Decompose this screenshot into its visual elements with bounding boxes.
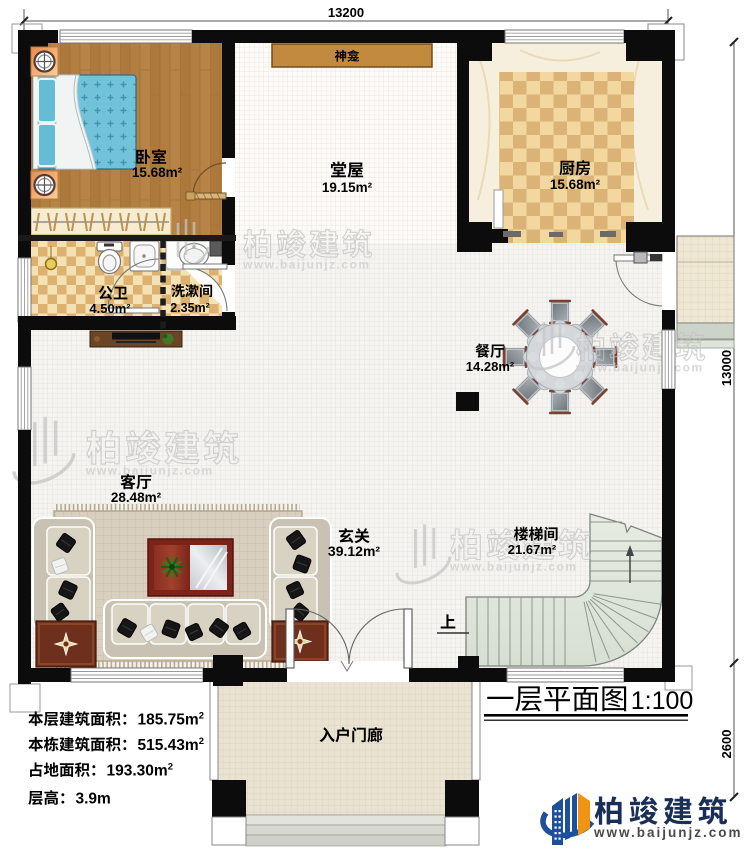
svg-text:13200: 13200 [328,5,364,20]
svg-text:1:100: 1:100 [631,687,694,715]
svg-text:15.68m²: 15.68m² [132,165,183,180]
svg-text:19.15m²: 19.15m² [322,180,373,195]
svg-text:13000: 13000 [719,350,734,386]
svg-text:185.75m2: 185.75m2 [138,711,205,729]
svg-text:21.67m²: 21.67m² [508,542,557,557]
svg-text:15.68m²: 15.68m² [550,177,601,192]
svg-text:515.43m2: 515.43m2 [138,736,205,754]
svg-text:2600: 2600 [719,730,734,759]
svg-text:www.baijunjz.com: www.baijunjz.com [242,258,371,272]
svg-text:193.30m2: 193.30m2 [107,762,174,780]
svg-text:14.28m²: 14.28m² [466,359,515,374]
svg-text:4.50m²: 4.50m² [89,301,131,316]
svg-text:2.35m²: 2.35m² [170,301,210,315]
svg-text:www.baijunjz.com: www.baijunjz.com [575,361,704,375]
svg-text:39.12m²: 39.12m² [328,543,380,559]
svg-text:3.9m: 3.9m [76,791,111,808]
svg-text:28.48m²: 28.48m² [111,490,162,505]
svg-text:www.baijunjz.com: www.baijunjz.com [449,560,578,574]
svg-text:www.baijunjz.com: www.baijunjz.com [593,825,743,840]
